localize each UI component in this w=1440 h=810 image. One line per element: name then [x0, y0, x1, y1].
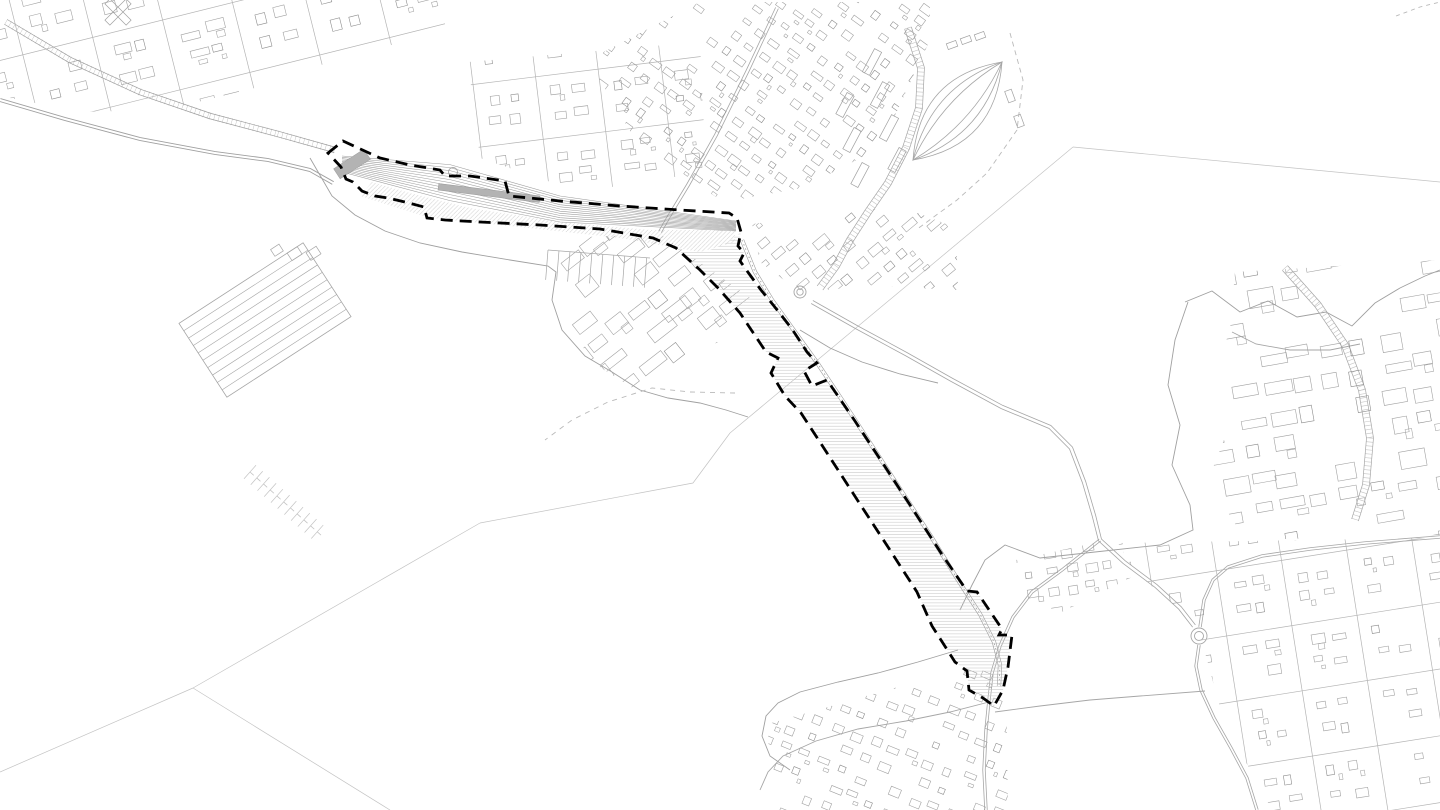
- building: [794, 20, 799, 25]
- campus-avenue-tick: [1364, 425, 1371, 426]
- boulevard-tick: [869, 204, 875, 208]
- building: [630, 149, 636, 155]
- building: [1242, 265, 1257, 277]
- building: [836, 660, 846, 670]
- street-line: [1063, 723, 1440, 796]
- building: [1205, 239, 1227, 251]
- boulevard-tick: [824, 277, 830, 281]
- building: [1298, 572, 1309, 583]
- building: [593, 0, 603, 5]
- building: [825, 241, 834, 250]
- building: [794, 121, 806, 132]
- building: [986, 760, 995, 769]
- building: [1322, 721, 1335, 731]
- building: [338, 59, 358, 71]
- building: [862, 646, 872, 654]
- building: [342, 86, 362, 97]
- building: [762, 204, 775, 216]
- building: [819, 180, 832, 192]
- building: [546, 356, 574, 383]
- building: [1258, 731, 1266, 739]
- building: [715, 365, 733, 383]
- building: [757, 237, 770, 249]
- building: [841, 745, 854, 755]
- campus-avenue-tick: [1365, 458, 1372, 459]
- campus-avenue-tick: [1322, 313, 1328, 317]
- building: [354, 131, 374, 145]
- building: [878, 33, 888, 43]
- building: [841, 274, 853, 286]
- building: [760, 690, 773, 700]
- building: [752, 5, 762, 14]
- building: [102, 0, 117, 14]
- building: [907, 191, 921, 205]
- building: [685, 79, 692, 85]
- building: [896, 248, 907, 259]
- building: [769, 222, 796, 247]
- building: [883, 229, 896, 241]
- corridor-hatch-area: [676, 232, 1012, 706]
- building: [496, 155, 507, 165]
- building: [1116, 536, 1124, 543]
- building: [757, 99, 762, 104]
- building: [679, 79, 691, 90]
- boulevard-tick: [917, 65, 924, 67]
- building: [1137, 627, 1143, 633]
- building: [923, 264, 930, 271]
- building: [1310, 493, 1327, 507]
- building: [673, 185, 679, 191]
- building: [576, 398, 604, 424]
- building: [820, 118, 830, 127]
- building: [638, 46, 648, 56]
- building: [562, 36, 571, 45]
- campus-avenue-tick: [1296, 281, 1301, 286]
- building: [693, 4, 704, 14]
- street-line: [34, 226, 526, 349]
- building: [1261, 301, 1274, 314]
- building: [1323, 531, 1329, 535]
- building: [942, 263, 956, 276]
- building: [693, 142, 697, 145]
- building: [1267, 740, 1271, 745]
- building: [134, 39, 145, 51]
- campus-avenue-tick: [1362, 409, 1369, 410]
- boulevard-tick: [874, 197, 880, 201]
- building: [696, 342, 723, 366]
- building: [1252, 709, 1263, 719]
- building: [921, 208, 929, 216]
- building: [793, 662, 807, 674]
- campus-avenue-tick: [1364, 462, 1371, 463]
- building: [1171, 555, 1177, 559]
- building: [785, 194, 796, 204]
- building: [833, 150, 842, 159]
- building: [743, 218, 756, 230]
- building: [811, 9, 822, 19]
- building: [830, 186, 842, 197]
- field-boundary-line: [193, 523, 480, 688]
- building: [505, 165, 510, 171]
- building: [1217, 268, 1237, 288]
- boat-docks-tick: [622, 256, 624, 286]
- district-fabric: [701, 577, 1076, 810]
- building: [751, 69, 762, 79]
- building: [1133, 739, 1139, 745]
- building: [948, 21, 959, 32]
- campus-avenue-tick: [1366, 442, 1373, 443]
- building: [875, 226, 879, 230]
- building: [1334, 656, 1347, 664]
- building: [396, 0, 408, 8]
- building: [1417, 410, 1432, 423]
- boulevard-tick: [859, 220, 865, 224]
- building: [1320, 343, 1342, 358]
- boulevard-tick: [828, 270, 834, 274]
- building: [890, 189, 900, 199]
- boulevard-tick: [912, 118, 919, 120]
- building: [876, 188, 888, 200]
- building: [855, 777, 867, 786]
- building: [689, 367, 700, 377]
- building: [1304, 252, 1331, 272]
- field-boundary-line: [1073, 147, 1440, 182]
- building: [708, 180, 721, 191]
- building: [1047, 567, 1058, 574]
- building: [807, 129, 819, 141]
- building: [603, 50, 609, 56]
- building: [132, 113, 151, 127]
- building: [939, 291, 954, 305]
- building: [817, 756, 830, 765]
- building: [1147, 751, 1157, 762]
- building: [786, 70, 797, 81]
- building: [1049, 587, 1060, 597]
- building: [1163, 569, 1173, 577]
- building: [860, 753, 871, 763]
- campus-avenue-tick: [1367, 438, 1374, 439]
- building: [880, 104, 885, 109]
- boulevard-tick: [876, 194, 882, 198]
- building: [1285, 531, 1300, 551]
- building: [909, 798, 921, 809]
- building: [1414, 753, 1423, 760]
- building: [739, 141, 750, 151]
- building: [569, 0, 578, 9]
- building: [365, 80, 383, 93]
- district-campus-east: [1150, 196, 1440, 623]
- building: [1103, 601, 1111, 609]
- boat-docks-tick: [579, 253, 581, 283]
- building: [745, 106, 755, 115]
- campus-avenue-tick: [1331, 326, 1337, 330]
- building: [690, 31, 698, 40]
- building: [1106, 580, 1118, 589]
- campus-avenue-tick: [1358, 499, 1365, 501]
- building: [640, 74, 650, 83]
- building: [572, 168, 580, 175]
- campus-avenue-tick: [1355, 507, 1362, 509]
- building: [890, 22, 898, 30]
- building: [1398, 480, 1417, 491]
- building: [844, 682, 854, 693]
- campus-loop: [1232, 332, 1360, 350]
- building: [808, 669, 818, 677]
- street-line: [421, 51, 742, 90]
- building: [918, 208, 928, 217]
- building: [856, 256, 869, 269]
- building: [1299, 590, 1310, 600]
- stadium-ring: [913, 62, 1002, 160]
- building: [861, 197, 873, 209]
- building: [1005, 555, 1017, 564]
- building: [1400, 294, 1426, 312]
- building: [1016, 793, 1026, 802]
- building: [1161, 529, 1171, 538]
- building: [685, 187, 698, 198]
- building: [742, 394, 750, 402]
- building: [416, 0, 430, 2]
- building: [1082, 628, 1086, 632]
- street-line: [1042, 592, 1440, 665]
- building: [894, 213, 904, 223]
- building: [1179, 679, 1193, 686]
- street-line: [1067, 472, 1140, 810]
- building: [664, 127, 673, 135]
- building: [1271, 409, 1298, 427]
- building: [710, 97, 722, 107]
- building: [886, 745, 899, 755]
- building: [869, 303, 880, 314]
- building: [799, 253, 811, 265]
- building: [752, 368, 773, 387]
- building: [541, 27, 553, 37]
- lake-west-shore: [960, 302, 1193, 610]
- building: [622, 122, 633, 133]
- building: [1191, 721, 1206, 732]
- building: [1129, 615, 1138, 623]
- district-fabric: [458, 111, 879, 525]
- campus-avenue-tick: [1363, 482, 1370, 483]
- building: [816, 30, 827, 41]
- building: [274, 104, 288, 117]
- building: [785, 683, 794, 693]
- campus-avenue-tick: [1326, 320, 1332, 324]
- building: [685, 132, 693, 138]
- building: [647, 19, 652, 24]
- building: [898, 273, 909, 284]
- building: [849, 0, 860, 3]
- boulevard-tick: [908, 130, 915, 132]
- building: [619, 77, 631, 88]
- boulevard-edge: [823, 27, 925, 290]
- building: [1380, 333, 1403, 353]
- building: [1026, 672, 1034, 681]
- campus-avenue-tick: [1365, 429, 1372, 430]
- building: [1111, 668, 1124, 675]
- campus-avenue-tick: [1309, 296, 1314, 301]
- building: [786, 239, 798, 250]
- building: [1012, 754, 1025, 766]
- building: [757, 260, 770, 272]
- building: [919, 778, 931, 789]
- building: [830, 186, 836, 192]
- building: [912, 761, 918, 767]
- building: [41, 24, 48, 32]
- building: [729, 383, 746, 399]
- building: [895, 728, 906, 738]
- slab-building: [836, 93, 854, 118]
- building: [1139, 688, 1154, 700]
- boulevard-tick: [854, 227, 860, 231]
- building: [587, 115, 600, 126]
- boulevard-tick: [886, 178, 892, 181]
- building: [550, 85, 561, 95]
- building: [597, 88, 603, 94]
- building: [1349, 339, 1365, 356]
- building: [807, 30, 812, 35]
- building: [647, 181, 657, 191]
- building: [1360, 770, 1365, 776]
- building: [224, 91, 241, 106]
- building: [921, 302, 937, 317]
- building: [996, 790, 1009, 801]
- building: [965, 711, 976, 720]
- campus-avenue-tick: [1282, 266, 1287, 271]
- building: [1129, 618, 1142, 629]
- building: [710, 106, 716, 111]
- building: [940, 659, 953, 670]
- building: [190, 47, 210, 58]
- building: [750, 136, 757, 143]
- building: [1126, 544, 1130, 548]
- building: [1377, 510, 1405, 523]
- building: [1409, 709, 1422, 718]
- building: [870, 675, 883, 685]
- building: [1203, 545, 1220, 559]
- building: [744, 729, 755, 740]
- building: [612, 393, 624, 404]
- building: [1274, 435, 1296, 452]
- building: [1280, 495, 1306, 509]
- building: [830, 785, 843, 795]
- boat-docks-tick: [590, 253, 592, 283]
- building: [915, 25, 921, 31]
- building: [1208, 425, 1224, 444]
- boulevard-tick: [863, 213, 869, 217]
- site-plan-map: [0, 0, 1440, 810]
- boat-docks-tick: [611, 255, 613, 285]
- plan-viewport: [0, 0, 1440, 810]
- building: [617, 238, 645, 263]
- boulevard-tick: [839, 252, 845, 255]
- boulevard-tick: [912, 50, 919, 52]
- building: [773, 208, 786, 220]
- building: [711, 191, 717, 197]
- campus-avenue-tick: [1363, 417, 1370, 418]
- boulevard-tick: [913, 54, 920, 56]
- building: [597, 163, 608, 173]
- building: [1399, 644, 1411, 652]
- building: [940, 224, 947, 231]
- building: [0, 28, 7, 42]
- building: [949, 168, 958, 177]
- building: [792, 767, 801, 776]
- building: [756, 222, 762, 228]
- building: [967, 269, 978, 280]
- building: [833, 196, 839, 202]
- building: [662, 295, 692, 322]
- building: [458, 133, 472, 142]
- campus-avenue-tick: [1335, 333, 1341, 337]
- building: [674, 70, 688, 81]
- building: [1364, 558, 1372, 566]
- building: [1197, 655, 1212, 664]
- building: [1243, 548, 1251, 558]
- building: [953, 280, 965, 292]
- building: [636, 108, 646, 118]
- building: [821, 140, 830, 148]
- building: [598, 173, 604, 178]
- boulevard-tick: [826, 274, 832, 278]
- building: [840, 88, 853, 100]
- building: [770, 276, 783, 288]
- building: [921, 760, 934, 771]
- building: [746, 179, 753, 186]
- building: [766, 395, 785, 413]
- building: [773, 61, 787, 74]
- building: [1181, 544, 1193, 553]
- building: [902, 705, 915, 716]
- street-line: [253, 0, 376, 279]
- building: [802, 796, 812, 806]
- building: [622, 185, 633, 195]
- building: [1051, 607, 1063, 615]
- building: [272, 82, 285, 92]
- campus-avenue-tick: [1333, 330, 1339, 334]
- building: [692, 173, 703, 183]
- building: [769, 170, 773, 174]
- building: [744, 43, 753, 52]
- street-line: [1021, 462, 1440, 535]
- building: [432, 1, 438, 7]
- campus-avenue-tick: [1317, 306, 1323, 310]
- building: [697, 195, 707, 204]
- building: [1246, 444, 1260, 458]
- building: [925, 175, 938, 187]
- building: [716, 81, 726, 91]
- building: [1096, 640, 1104, 647]
- building: [712, 197, 724, 207]
- campus-avenue-tick: [1342, 344, 1349, 346]
- boulevard: [819, 27, 924, 288]
- street-line: [1393, 420, 1440, 810]
- pier-line: [222, 309, 346, 390]
- building: [591, 409, 605, 423]
- campus-avenue-tick: [1361, 401, 1368, 402]
- building: [812, 715, 823, 726]
- building: [515, 158, 525, 165]
- building: [566, 22, 577, 33]
- building: [1241, 417, 1267, 429]
- building: [1339, 774, 1343, 780]
- street-line: [113, 0, 236, 314]
- building: [406, 47, 418, 57]
- building: [1175, 520, 1189, 530]
- building: [961, 694, 965, 698]
- building: [1338, 697, 1348, 705]
- building: [817, 56, 827, 66]
